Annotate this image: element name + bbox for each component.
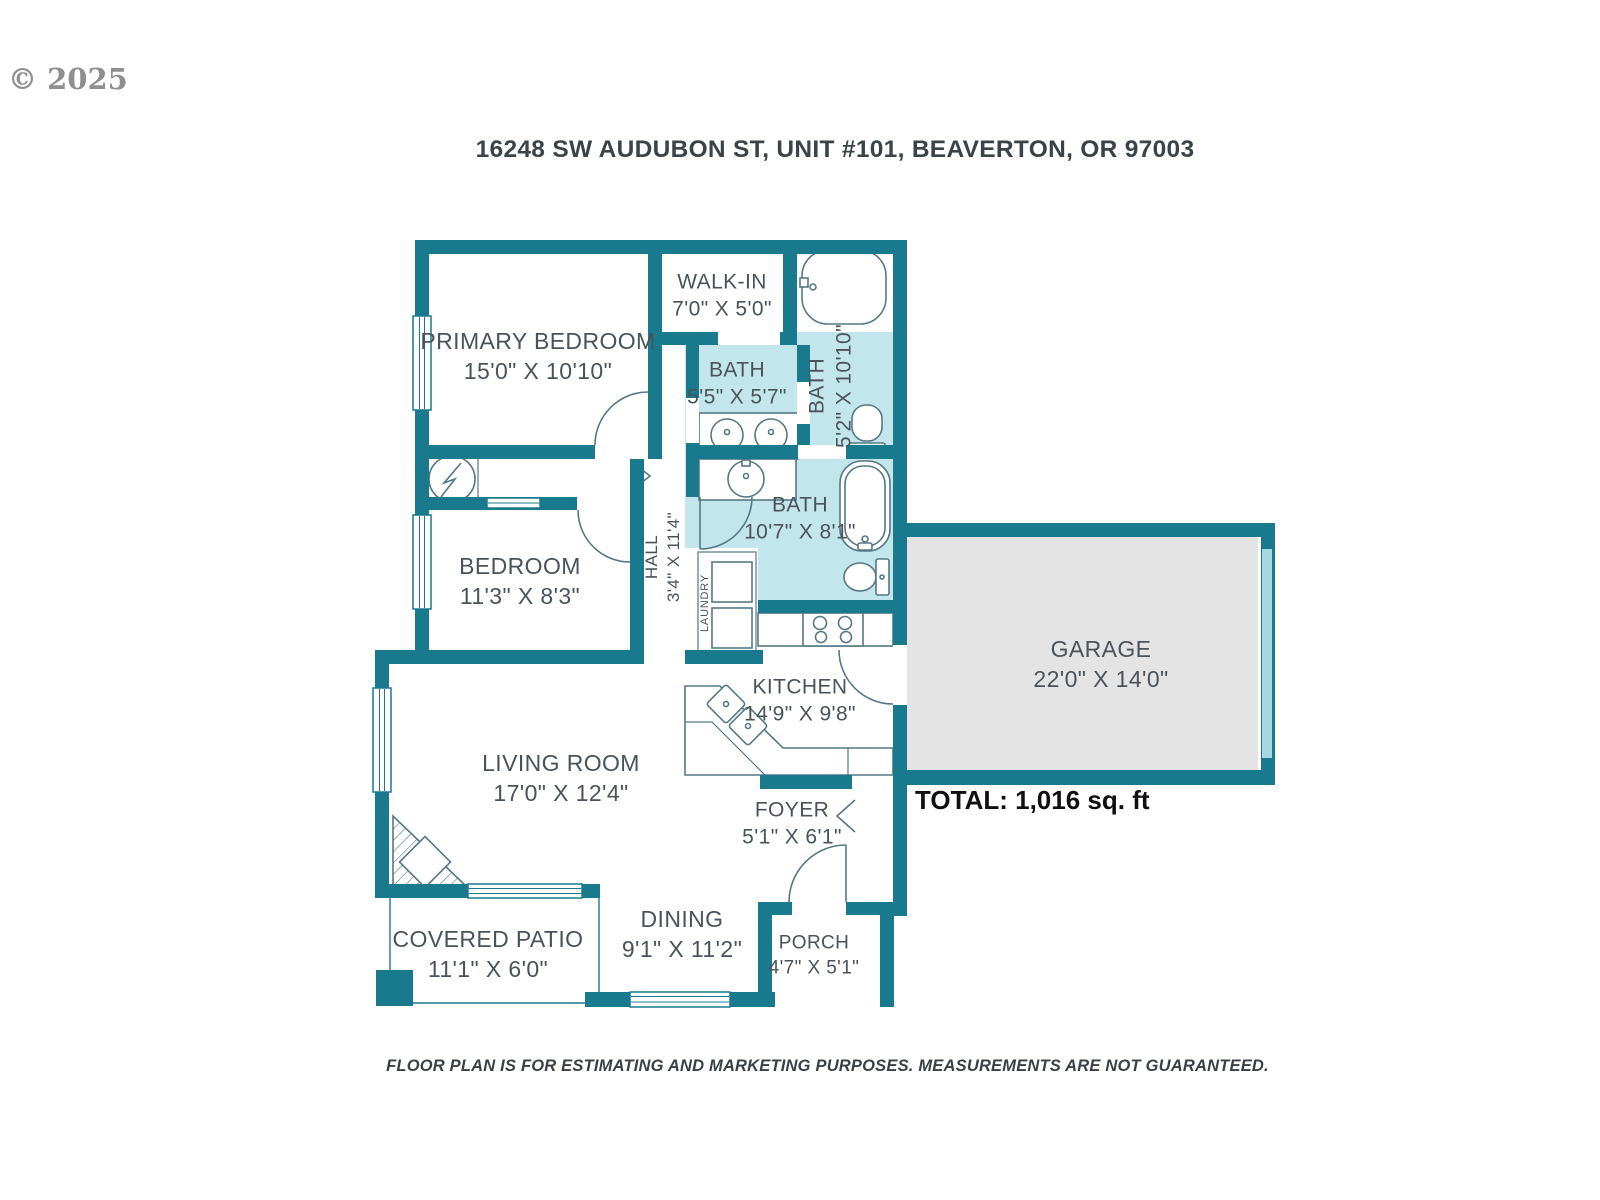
room-label-bath-top: BATH 5'5" X 5'7" [687, 357, 787, 412]
room-label-garage: GARAGE 22'0" X 14'0" [1033, 635, 1168, 695]
room-label-laundry: LAUNDRY [698, 574, 712, 632]
disclaimer-text: FLOOR PLAN IS FOR ESTIMATING AND MARKETI… [55, 1057, 1600, 1076]
room-label-covered-patio: COVERED PATIO 11'1" X 6'0" [393, 925, 584, 985]
water-heater [429, 456, 478, 502]
room-label-porch: PORCH 4'7" X 5'1" [769, 931, 860, 980]
room-label-dining: DINING 9'1" X 11'2" [622, 905, 742, 965]
room-label-primary-bedroom: PRIMARY BEDROOM 15'0" X 10'10" [420, 327, 655, 387]
room-label-hall: HALL 3'4" X 11'4" [641, 512, 685, 602]
room-label-walk-in: WALK-IN 7'0" X 5'0" [672, 269, 772, 324]
window [373, 688, 391, 792]
window [630, 992, 730, 1007]
garage-door [1262, 549, 1272, 758]
stove [803, 613, 863, 646]
room-label-kitchen: KITCHEN 14'9" X 9'8" [744, 674, 856, 729]
front-door-arc [789, 845, 846, 902]
window [468, 884, 582, 898]
room-label-bath-right: BATH 5'2" X 10'10" [804, 324, 859, 448]
window [487, 498, 540, 508]
room-label-living-room: LIVING ROOM 17'0" X 12'4" [482, 749, 640, 809]
floor-plan-drawing [0, 0, 1600, 1200]
total-area-text: TOTAL: 1,016 sq. ft [915, 785, 1150, 816]
fireplace [393, 816, 468, 888]
bathtub [800, 250, 886, 324]
floor-plan-page: © 2025 16248 SW AUDUBON ST, UNIT #101, B… [0, 0, 1600, 1200]
room-label-foyer: FOYER 5'1" X 6'1" [742, 797, 842, 852]
window [413, 515, 431, 609]
door-arc [595, 392, 648, 445]
room-label-bedroom: BEDROOM 11'3" X 8'3" [459, 552, 581, 612]
room-label-bath-main: BATH 10'7" X 8'1" [744, 492, 856, 547]
door-arc [578, 510, 630, 562]
